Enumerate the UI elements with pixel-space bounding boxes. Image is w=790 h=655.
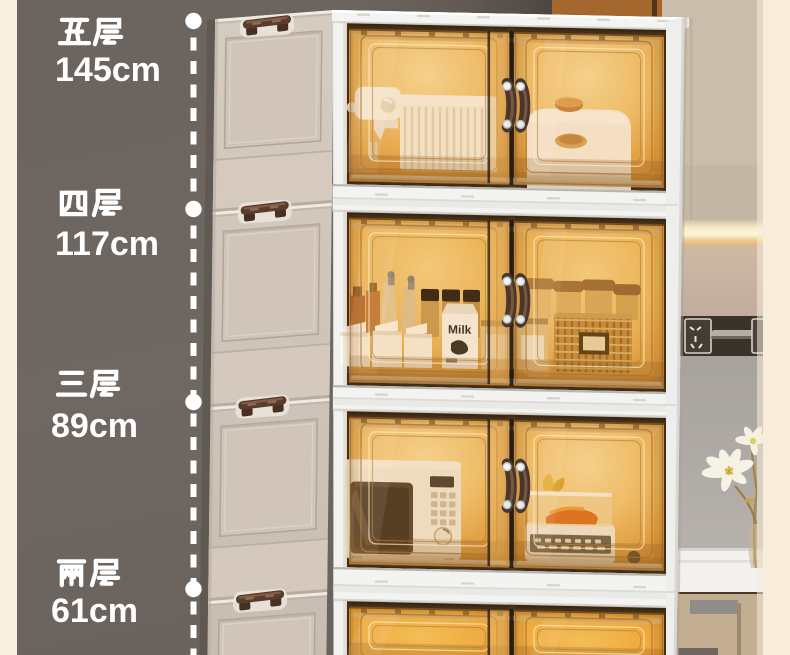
svg-text:61cm: 61cm: [51, 592, 138, 630]
svg-text:117cm: 117cm: [55, 225, 159, 263]
svg-text:145cm: 145cm: [55, 51, 161, 89]
svg-text:89cm: 89cm: [51, 407, 138, 445]
